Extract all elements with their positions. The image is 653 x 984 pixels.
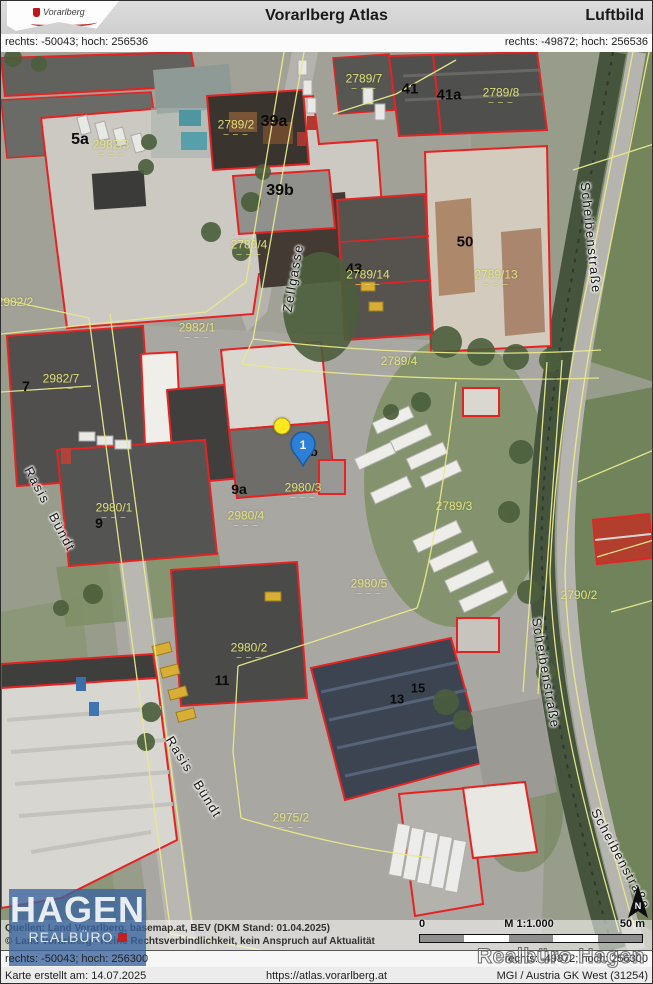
coord-top-left: rechts: -50043; hoch: 256536 (5, 36, 148, 48)
aerial-imagery (1, 52, 653, 950)
title-bar: Vorarlberg Vorarlberg Atlas Luftbild (1, 1, 652, 35)
coordinate-bar-top: rechts: -50043; hoch: 256536 rechts: -49… (1, 34, 652, 53)
page-title: Vorarlberg Atlas (1, 7, 652, 25)
scale-bar-segments (419, 934, 643, 943)
highlight-dot-marker[interactable] (274, 418, 291, 435)
crs-label: MGI / Austria GK West (31254) (497, 970, 648, 982)
map-viewport[interactable]: 5a39a39b4141a4350799ab1113152982/3– – –2… (1, 52, 653, 950)
hagen-logo-subtitle: REALBÜRO (9, 929, 146, 945)
scale-ratio-label: M 1:1.000 (413, 918, 645, 930)
realbuero-hagen-watermark: Realbüro Hagen (477, 945, 645, 969)
atlas-print-view: Vorarlberg Vorarlberg Atlas Luftbild rec… (0, 0, 653, 984)
hagen-red-square-icon (118, 933, 127, 942)
footer-bar: Karte erstellt am: 14.07.2025 https://at… (1, 967, 652, 984)
coord-top-right: rechts: -49872; hoch: 256536 (505, 36, 648, 48)
north-arrow-icon: N (627, 885, 649, 921)
map-theme-title: Luftbild (585, 7, 644, 25)
pin-number: 1 (300, 438, 307, 452)
location-pin-marker[interactable]: 1 (290, 431, 316, 467)
hagen-logo-title: HAGEN (9, 891, 146, 929)
north-letter: N (635, 901, 642, 911)
coord-bottom-left: rechts: -50043; hoch: 256300 (5, 953, 148, 965)
